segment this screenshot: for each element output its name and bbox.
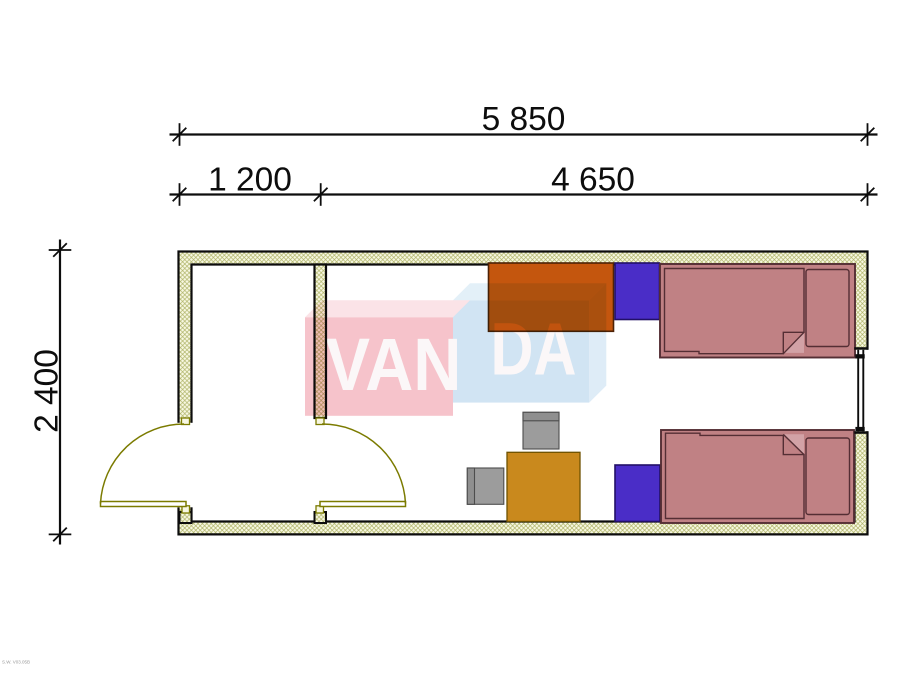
svg-text:2 400: 2 400 (29, 349, 66, 433)
svg-text:4 650: 4 650 (551, 162, 635, 199)
svg-text:VAN: VAN (326, 323, 462, 406)
svg-text:5 850: 5 850 (482, 101, 566, 138)
svg-text:DA: DA (491, 308, 577, 391)
svg-text:1 200: 1 200 (208, 162, 292, 199)
svg-text:S.W. V03.05B: S.W. V03.05B (2, 660, 30, 665)
